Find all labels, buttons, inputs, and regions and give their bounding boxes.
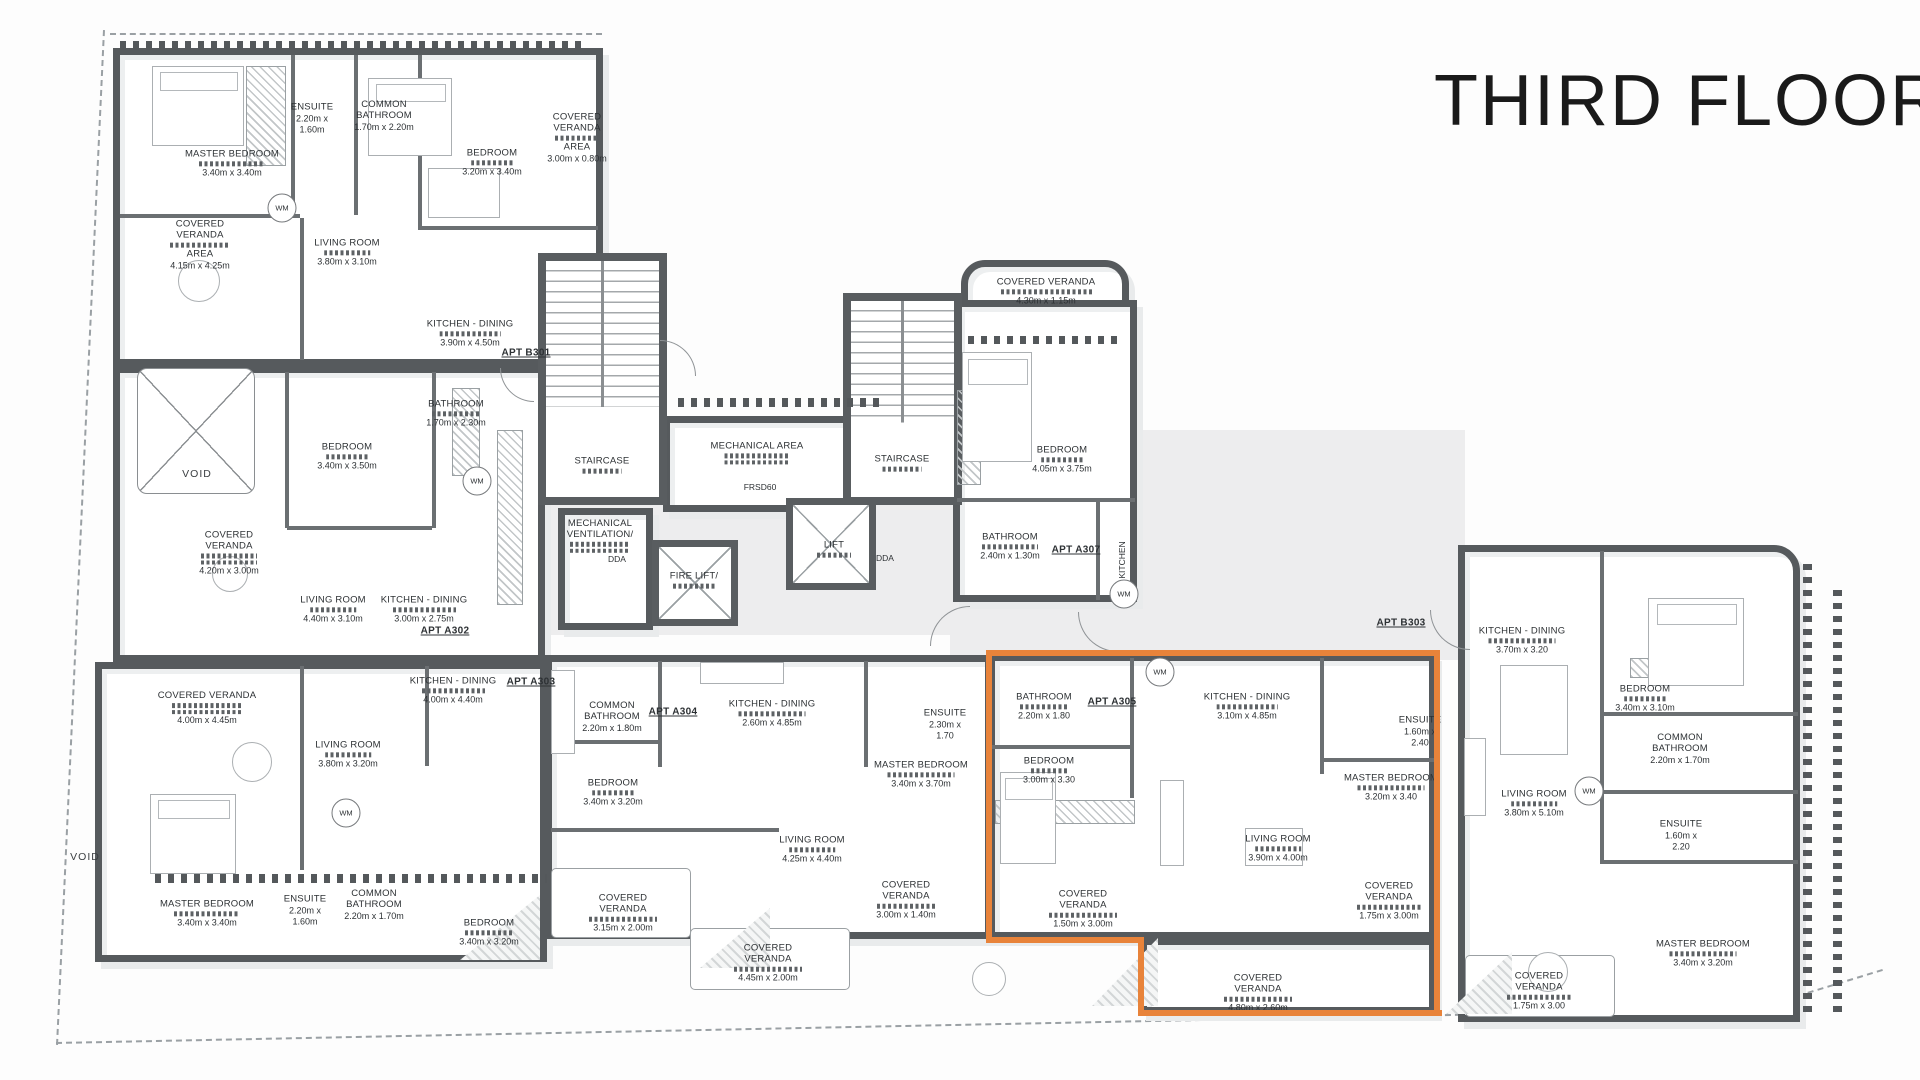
room-label: COVERED VERANDA3.00m x 1.40m [865,880,947,921]
wall-segment [1604,790,1798,794]
wall-segment [300,666,304,870]
furniture [1657,604,1738,625]
room-label: KITCHEN - DINING3.90m x 4.50m [427,318,514,347]
wall-segment [1600,551,1604,713]
annotation-label: VOID [182,468,212,480]
room-label: BEDROOM3.40m x 3.20m [454,917,524,946]
wall-segment [551,828,779,832]
annotation-label: WM [268,194,297,223]
exterior-wall [678,398,884,407]
exterior-wall [1833,588,1842,1012]
furniture [158,800,231,819]
floor-plan: THIRD FLOOR [0,0,1920,1080]
annotation-label: FRSD60 [744,482,777,492]
annotation-label: DDA [876,553,894,563]
core-label: STAIRCASE [875,454,930,473]
veranda-table [232,742,272,782]
room-label: LIVING ROOM3.80m x 3.20m [315,739,381,768]
room-label: MASTER BEDROOM3.40m x 3.70m [874,759,969,788]
bed [1000,772,1056,864]
room-label: ENSUITE2.20m x 1.60m [286,101,338,134]
room-label: COVERED VERANDA4.30m x 1.15m [981,276,1111,305]
bed [1648,598,1744,686]
room-label: ENSUITE2.30m x 1.70 [920,707,970,740]
apartment-label: APT A304 [649,707,698,718]
sofa [700,662,784,684]
room-label: LIVING ROOM3.90m x 4.00m [1245,833,1311,862]
apartment-label: APT A303 [507,677,556,688]
highlight-outline [1138,1010,1442,1016]
page-title: THIRD FLOOR [1434,60,1920,142]
annotation-label: WM [1575,777,1604,806]
wall-segment [1324,758,1434,762]
room-label: BEDROOM3.40m x 3.50m [317,441,377,470]
annotation-label: WM [463,467,492,496]
room-label: COVERED VERANDAAREA4.15m x 4.25m [157,219,243,272]
annotation-label: WM [1146,658,1175,687]
bed [962,352,1032,462]
room-label: BEDROOM3.00m x 3.30 [1023,755,1075,784]
core-label: STAIRCASE [575,456,630,475]
plot-boundary-line [110,33,602,35]
room-label: KITCHEN - DINING3.10m x 4.85m [1204,691,1291,720]
furniture [968,359,1027,385]
apartment-label: APT A305 [1088,697,1137,708]
apartment-label: APT A302 [421,626,470,637]
wall-segment [1604,860,1798,864]
sofa [1464,738,1486,816]
furniture [160,72,238,91]
room-label: BEDROOM3.40m x 3.10m [1615,683,1675,712]
room-label: BEDROOM3.20m x 3.40m [462,147,522,176]
exterior-wall [120,41,588,50]
room-label: MASTER BEDROOM3.40m x 3.40m [160,898,254,927]
room-label: MASTER BEDROOM3.40m x 3.20m [1656,938,1751,967]
wall-segment [1130,658,1134,798]
room-label: LIVING ROOM3.80m x 3.10m [314,237,380,266]
room-label: MASTER BEDROOM3.40m x 3.40m [185,148,279,177]
veranda-table [972,962,1006,996]
sofa [1160,780,1184,866]
room-label: MASTER BEDROOM3.20m x 3.40 [1344,772,1439,801]
annotation-label: WM [332,799,361,828]
wall-segment [957,498,1135,502]
core-label: MECHANICAL VENTILATION/ [557,518,643,554]
room-label: COVERED VERANDA1.75m x 3.00m [1343,881,1435,922]
room-label: COVERED VERANDA4.00m x 4.45m [157,690,257,726]
annotation-label: WM [1110,580,1139,609]
room-label: COMMON BATHROOM2.20m x 1.70m [1640,732,1720,766]
room-label: LIVING ROOM4.25m x 4.40m [779,834,845,863]
exterior-wall [155,874,547,883]
dining-table [1500,665,1568,755]
wall-segment [285,372,289,528]
wardrobe [497,430,523,605]
wall-segment [287,526,432,530]
wall-segment [354,55,358,215]
core-label: LIFT [817,540,851,559]
annotation-label: KITCHEN [1117,541,1127,578]
wall-segment [420,226,598,230]
room-label: KITCHEN - DINING2.60m x 4.85m [725,698,820,727]
core-label: FIRE LIFT/ [664,571,724,590]
room-label: BATHROOM2.20m x 1.80 [1009,691,1079,720]
room-label: COVERED VERANDA1.50m x 3.00m [1034,889,1132,930]
furniture [660,340,696,376]
apartment-label: APT A307 [1052,545,1101,556]
room-label: COVERED VERANDAAREA3.00m x 0.80m [545,112,609,165]
highlight-outline [986,650,992,943]
room-label: COVERED VERANDA4.20m x 3.00m [189,529,269,576]
apartment-label: APT B301 [501,348,550,359]
annotation-label: DDA [608,554,626,564]
room-label: COVERED VERANDA4.80m x 2.60m [1209,973,1307,1014]
annotation-label: VOID [70,851,100,863]
room-label: ENSUITE2.20m x 1.60m [279,893,331,926]
room-label: BATHROOM2.40m x 1.30m [970,531,1050,560]
core-label: MECHANICAL AREA [711,440,804,465]
room-label: BATHROOM1.70m x 2.30m [421,398,491,427]
exterior-wall [968,336,1122,344]
wall-segment [992,745,1134,749]
room-label: KITCHEN - DINING3.70m x 3.20 [1475,625,1570,654]
wall-segment [432,372,436,528]
room-label: KITCHEN - DINING4.00m x 4.40m [408,675,498,704]
highlight-outline [986,937,1144,943]
room-label: LIVING ROOM3.80m x 5.10m [1501,788,1567,817]
wall-segment [864,661,868,767]
room-label: LIVING ROOM4.40m x 3.10m [300,594,366,623]
highlight-outline [1138,937,1144,1016]
wall-segment [291,55,295,215]
bed [152,66,244,146]
wall-segment [1320,658,1324,774]
room-label: COVERED VERANDA3.15m x 2.00m [574,893,672,934]
room-label: COMMON BATHROOM1.70m x 2.20m [344,99,424,133]
room-label: KITCHEN - DINING3.00m x 2.75m [379,594,469,623]
room-label: BEDROOM4.05m x 3.75m [1032,444,1092,473]
highlight-outline [1434,650,1440,1016]
wall-segment [300,218,304,360]
room-label: COMMON BATHROOM2.20m x 1.80m [573,700,651,734]
room-label: COVERED VERANDA1.75m x 3.00 [1493,971,1585,1012]
apartment-label: APT B303 [1376,618,1425,629]
room-label: COVERED VERANDA4.45m x 2.00m [719,943,817,984]
bed [150,794,236,874]
room-label: COMMON BATHROOM2.20m x 1.70m [335,888,413,922]
room-label: ENSUITE1.60m x 2.20 [1656,818,1706,851]
exterior-wall [1803,560,1812,1012]
highlight-outline [986,650,1440,656]
room-label: BEDROOM3.40m x 3.20m [583,777,643,806]
